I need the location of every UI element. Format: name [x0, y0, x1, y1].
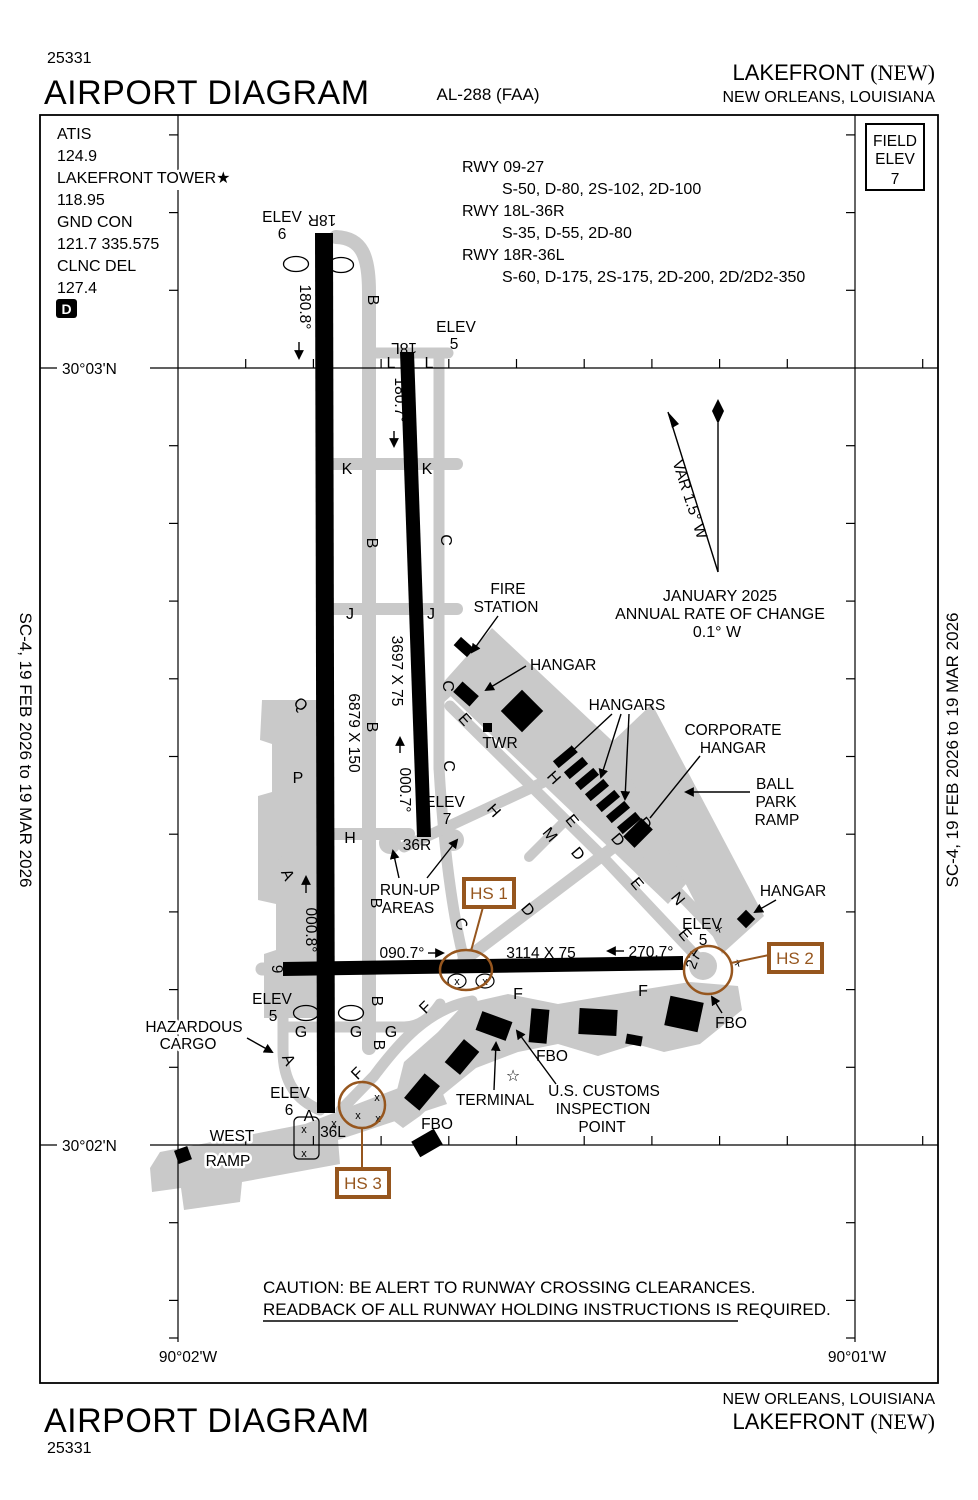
- footer-title: AIRPORT DIAGRAM: [44, 1402, 370, 1440]
- x-mark-9: x: [374, 1092, 380, 1104]
- twy-c-3: C: [440, 760, 457, 772]
- twr-label: TWR: [482, 735, 517, 752]
- twy-a-3: A: [304, 1108, 315, 1125]
- comm-box: ATIS 124.9 LAKEFRONT TOWER★ 118.95 GND C…: [56, 126, 230, 318]
- fbo-sw-label: FBO: [421, 1116, 453, 1133]
- twy-k-1: K: [342, 461, 353, 478]
- chart-code: AL-288 (FAA): [437, 85, 540, 104]
- lat-label-top: 30°03'N: [62, 361, 117, 378]
- rwy-36l-elev-value: 6: [285, 1102, 294, 1119]
- field-elev-value: 7: [891, 171, 900, 188]
- rwy-09-27-dimensions: 3114 X 75: [506, 945, 576, 962]
- effective-dates-right: SC-4, 19 FEB 2026 to 19 MAR 2026: [943, 613, 962, 888]
- city-bottom: NEW ORLEANS, LOUISIANA: [723, 1391, 936, 1408]
- west-ramp-label-2: RAMP: [206, 1153, 251, 1170]
- hangar-east-label: HANGAR: [760, 883, 826, 900]
- rwy-27-heading: 270.7°: [629, 944, 674, 961]
- twy-b-2: B: [363, 538, 380, 549]
- hazardous-cargo-label-2: CARGO: [160, 1036, 217, 1053]
- x-mark-1: x: [454, 976, 460, 988]
- hazardous-cargo-leader: [247, 1038, 272, 1052]
- airport-name-text: LAKEFRONT: [733, 60, 871, 85]
- rwy-18l-elev-label: ELEV: [436, 319, 476, 336]
- rwy-18l-elev-value: 5: [450, 336, 459, 353]
- airport-name-top: LAKEFRONT (NEW): [733, 60, 936, 85]
- runup-pad-west: [379, 832, 401, 854]
- fire-station-label-2: STATION: [474, 599, 539, 616]
- customs-label-1: U.S. CUSTOMS: [548, 1083, 660, 1100]
- atis-label: ATIS: [57, 126, 91, 143]
- rwy-18l-heading: 180.7°: [391, 378, 408, 423]
- airport-name-bottom: LAKEFRONT (NEW): [733, 1409, 936, 1434]
- rwy-36r-heading: 000.7°: [396, 768, 413, 813]
- customs-label-2: INSPECTION: [556, 1101, 651, 1118]
- terminal-label: TERMINAL: [456, 1092, 535, 1109]
- chart-number-top: 25331: [47, 50, 92, 67]
- rwy-18r-dimensions: 6879 X 150: [345, 693, 362, 773]
- tower-freq: 118.95: [57, 192, 105, 209]
- header: 25331 AIRPORT DIAGRAM AL-288 (FAA) LAKEF…: [44, 50, 935, 112]
- rwy-09-elev-label: ELEV: [252, 991, 292, 1008]
- effective-dates-left: SC-4, 19 FEB 2026 to 19 MAR 2026: [16, 613, 35, 888]
- twr-building: [483, 723, 492, 732]
- x-mark-8: x: [355, 1110, 361, 1122]
- fbo-mid-label: FBO: [536, 1048, 568, 1065]
- ground-label: GND CON: [57, 214, 133, 231]
- twy-f-1: F: [513, 986, 523, 1003]
- twy-l-1: L: [387, 355, 396, 372]
- variation-label: VAR 1.5° W: [669, 458, 711, 541]
- city-top: NEW ORLEANS, LOUISIANA: [723, 89, 936, 106]
- fire-station-label-1: FIRE: [490, 581, 525, 598]
- taxiway-b: [336, 237, 369, 1048]
- ball-park-label-1: BALL: [756, 776, 794, 793]
- true-north-arrowhead-icon: [712, 399, 724, 424]
- rwy-18r-elev-value: 6: [278, 226, 287, 243]
- customs-label-3: POINT: [578, 1119, 626, 1136]
- corporate-hangar-label-1: CORPORATE: [684, 722, 781, 739]
- twy-g-3: G: [385, 1024, 397, 1041]
- twy-f-2: F: [638, 983, 648, 1000]
- runway-18r-36l: [315, 233, 335, 1113]
- clearance-label: CLNC DEL: [57, 258, 136, 275]
- twy-c-1: C: [437, 534, 454, 546]
- blast-pad-oval-18r-west: [284, 257, 309, 272]
- twy-c-2: C: [439, 680, 456, 692]
- twy-d-2: D: [567, 844, 587, 864]
- field-elev-box: FIELD ELEV 7: [866, 124, 924, 190]
- runup-pad-east: [442, 829, 464, 851]
- lon-label-left: 90°02'W: [159, 1349, 218, 1366]
- customs-star-icon: ☆: [506, 1068, 520, 1085]
- lat-label-bottom: 30°02'N: [62, 1138, 117, 1155]
- ramp-building-3: [529, 1008, 550, 1043]
- airport-diagram-svg: 25331 AIRPORT DIAGRAM AL-288 (FAA) LAKEF…: [0, 0, 978, 1500]
- atis-freq: 124.9: [57, 148, 97, 165]
- runup-areas-label-1: RUN-UP: [380, 882, 440, 899]
- fbo-east-label: FBO: [715, 1015, 747, 1032]
- twy-j-2: J: [427, 606, 435, 623]
- variation-date: JANUARY 2025: [663, 588, 777, 605]
- runup-leader-1: [393, 851, 399, 878]
- rwy-36r-elev-value: 7: [443, 811, 452, 828]
- tower-star-icon: ★: [216, 170, 230, 187]
- rwy-data-name-3: RWY 18R-36L: [462, 247, 565, 264]
- field-elev-line2: ELEV: [875, 151, 915, 168]
- hangar-north-label: HANGAR: [530, 657, 596, 674]
- twy-h-1: H: [344, 830, 356, 847]
- caution-block: CAUTION: BE ALERT TO RUNWAY CROSSING CLE…: [263, 1278, 831, 1321]
- notam-d-letter: D: [61, 301, 71, 317]
- airport-name-bottom-text: LAKEFRONT: [733, 1409, 871, 1434]
- runway-data-block: RWY 09-27 S-50, D-80, 2S-102, 2D-100 RWY…: [462, 159, 805, 286]
- runway-18l-36r: [400, 352, 431, 837]
- rwy-data-spec-3: S-60, D-175, 2S-175, 2D-200, 2D/2D2-350: [502, 269, 805, 286]
- x-mark-5: x: [301, 1124, 307, 1136]
- caution-line-1: CAUTION: BE ALERT TO RUNWAY CROSSING CLE…: [263, 1278, 756, 1297]
- twy-p: P: [293, 770, 304, 787]
- rwy-data-spec-2: S-35, D-55, 2D-80: [502, 225, 632, 242]
- twy-b-1: B: [364, 295, 381, 306]
- rwy-data-name-1: RWY 09-27: [462, 159, 544, 176]
- ground-freq: 121.7 335.575: [57, 236, 159, 253]
- annual-rate-label: ANNUAL RATE OF CHANGE: [615, 606, 825, 623]
- rwy-09-number: 9: [268, 965, 285, 974]
- footer: AIRPORT DIAGRAM 25331 NEW ORLEANS, LOUIS…: [44, 1391, 935, 1457]
- runup-areas-label-2: AREAS: [382, 900, 435, 917]
- hotspot-1-label: HS 1: [470, 884, 508, 903]
- west-ramp-label-1: WEST: [210, 1128, 255, 1145]
- runway-09-27: [283, 956, 683, 976]
- rwy-36l-elev-label: ELEV: [270, 1085, 310, 1102]
- twy-k-2: K: [422, 461, 433, 478]
- tower-label: LAKEFRONT TOWER★: [57, 170, 230, 187]
- rwy-18r-number: 18R: [308, 211, 336, 228]
- ramp-building-4: [578, 1008, 617, 1036]
- rwy-36l-heading: 000.8°: [302, 908, 319, 953]
- blast-pad-oval-36l-east: [339, 1006, 364, 1021]
- field-elev-line1: FIELD: [873, 133, 917, 150]
- twy-b-6: B: [370, 1040, 387, 1051]
- airport-suffix-text: (NEW): [870, 60, 935, 85]
- rwy-09-heading: 090.7°: [380, 945, 425, 962]
- twy-l-2: L: [425, 355, 434, 372]
- clearance-freq: 127.4: [57, 280, 97, 297]
- annual-rate-value: 0.1° W: [693, 624, 742, 641]
- magnetic-north-barb-icon: [668, 412, 679, 428]
- rwy-18r-elev-label: ELEV: [262, 209, 302, 226]
- ball-park-label-2: PARK: [755, 794, 797, 811]
- twy-g-2: G: [350, 1024, 362, 1041]
- twy-j-1: J: [346, 606, 354, 623]
- airport-diagram-page: 25331 AIRPORT DIAGRAM AL-288 (FAA) LAKEF…: [0, 0, 978, 1500]
- twy-g-1: G: [295, 1024, 307, 1041]
- rwy-data-spec-1: S-50, D-80, 2S-102, 2D-100: [502, 181, 701, 198]
- caution-line-2: READBACK OF ALL RUNWAY HOLDING INSTRUCTI…: [263, 1300, 831, 1319]
- compass-rose: VAR 1.5° W JANUARY 2025 ANNUAL RATE OF C…: [615, 399, 825, 641]
- x-mark-7: x: [301, 1148, 307, 1160]
- x-mark-4: x: [733, 957, 743, 970]
- rwy-36r-elev-label: ELEV: [425, 794, 465, 811]
- hotspot-2-label: HS 2: [776, 949, 814, 968]
- airport-suffix-bottom-text: (NEW): [870, 1409, 935, 1434]
- page-title: AIRPORT DIAGRAM: [44, 74, 370, 112]
- corporate-hangar-label-2: HANGAR: [700, 740, 766, 757]
- lon-label-right: 90°01'W: [828, 1349, 887, 1366]
- rwy-09-elev-value: 5: [269, 1008, 278, 1025]
- tower-label-text: LAKEFRONT TOWER: [57, 170, 216, 187]
- hangars-label: HANGARS: [589, 697, 666, 714]
- rwy-data-name-2: RWY 18L-36R: [462, 203, 565, 220]
- x-mark-6: x: [331, 1118, 337, 1130]
- twy-b-3: B: [363, 722, 380, 733]
- twy-b-5: B: [368, 996, 385, 1007]
- chart-number-bottom: 25331: [47, 1440, 92, 1457]
- rwy-18l-dimensions: 3697 X 75: [388, 636, 405, 707]
- ball-park-label-3: RAMP: [755, 812, 800, 829]
- hazardous-cargo-label-1: HAZARDOUS: [145, 1019, 242, 1036]
- hotspot-3-label: HS 3: [344, 1174, 382, 1193]
- rwy-18r-heading: 180.8°: [296, 285, 313, 330]
- rwy-36r-number: 36R: [403, 837, 431, 854]
- rwy-18l-number: 18L: [391, 339, 417, 356]
